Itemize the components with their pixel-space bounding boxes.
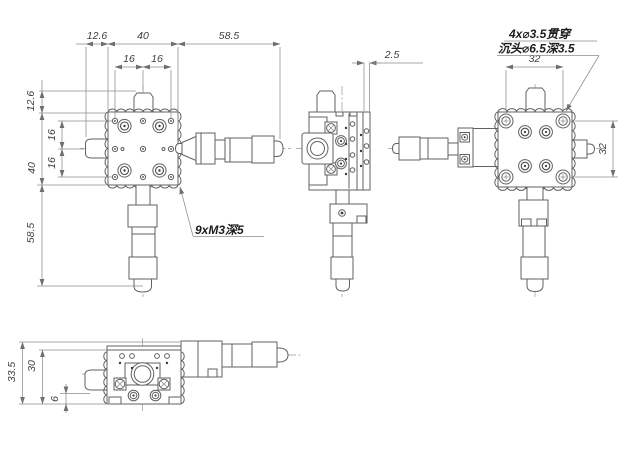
dim-front-top-width: 40: [137, 30, 149, 42]
front-left-stub: [86, 139, 109, 158]
dim-front-top-offset: 12.6: [87, 30, 108, 42]
right-view: [388, 84, 604, 297]
side-view: [296, 86, 370, 297]
front-right-micrometer: [176, 133, 284, 164]
dim-cb-span-side: 32: [597, 143, 609, 155]
note-counterbore-line2: 沉头⌀6.5深3.5: [498, 42, 575, 56]
dim-bottom-body: 30: [26, 360, 38, 372]
side-bottom-bracket: [330, 190, 367, 223]
dim-front-top-pitch-b: 16: [151, 53, 163, 65]
side-top-knob: [317, 91, 335, 112]
dim-front-left-offset: 12.6: [25, 91, 37, 112]
side-bottom-micrometer: [331, 223, 353, 291]
stage-drawing-svg: 12.6 40 58.5 16 16 12.6 40 58.5 16 16: [0, 0, 630, 453]
front-view: [80, 86, 291, 297]
bottom-bracket: [181, 341, 222, 377]
right-bottom-micrometer: [519, 187, 548, 292]
dim-front-left-pitch-a: 16: [46, 129, 58, 141]
front-bottom-micrometer: [128, 185, 157, 292]
dim-front-top-pitch-a: 16: [123, 53, 135, 65]
dim-front-left-pitch-b: 16: [46, 157, 58, 169]
dim-bottom-base: 6: [49, 396, 61, 402]
cad-drawing-canvas: 12.6 40 58.5 16 16 12.6 40 58.5 16 16: [0, 0, 630, 453]
bottom-right-micrometer: [222, 342, 288, 367]
dim-bottom-total: 33.5: [6, 362, 18, 383]
bottom-view: [82, 338, 303, 412]
note-tapped-holes: 9xM3深5: [195, 223, 244, 237]
right-left-micrometer: [393, 128, 499, 167]
dim-side-gap: 2.5: [384, 49, 400, 61]
dim-front-top-mic: 58.5: [219, 30, 240, 42]
note-counterbore-line1: 4x⌀3.5贯穿: [508, 27, 572, 41]
dim-front-left-mic: 58.5: [25, 223, 37, 244]
dim-front-left-height: 40: [26, 162, 38, 174]
